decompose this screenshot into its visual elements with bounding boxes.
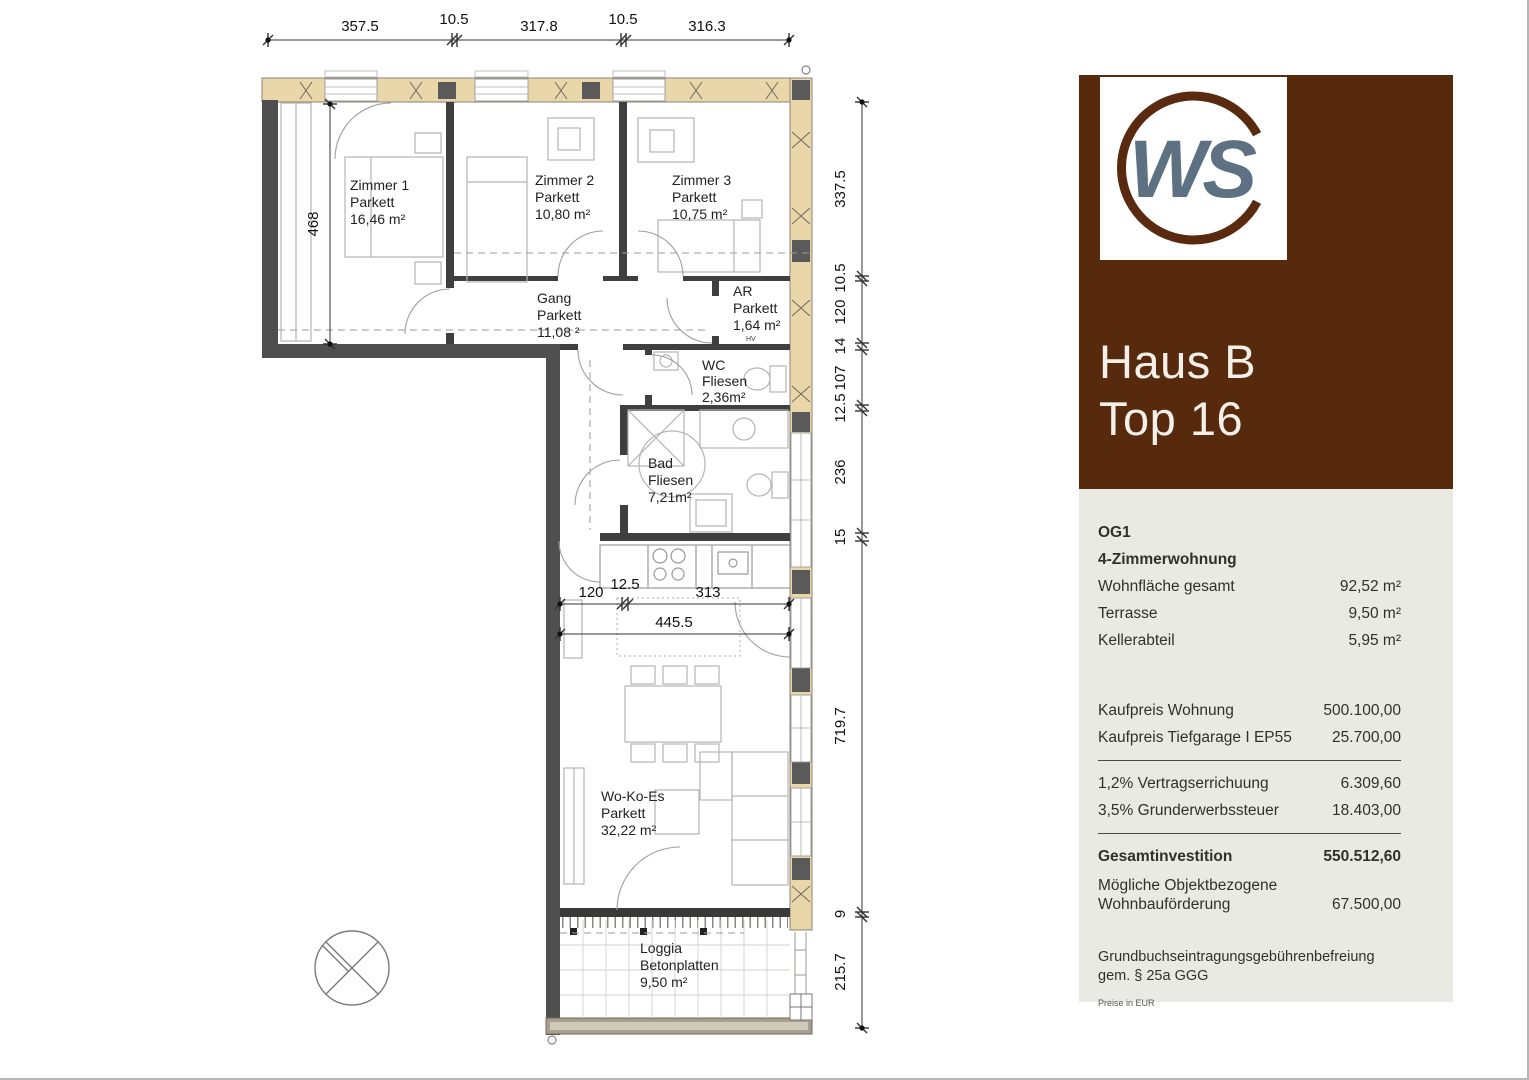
- subsidy-row: Mögliche Objektbezogene Wohnbauförderung…: [1098, 876, 1401, 914]
- hv-label: HV: [746, 336, 756, 343]
- svg-text:Gang: Gang: [537, 290, 571, 306]
- unit-title-line2: Top 16: [1099, 390, 1256, 447]
- area-row: Wohnfläche gesamt92,52 m²: [1098, 573, 1401, 600]
- unit-title: Haus B Top 16: [1099, 333, 1256, 447]
- svg-text:236: 236: [832, 459, 849, 484]
- svg-text:313: 313: [695, 584, 720, 601]
- svg-text:Parkett: Parkett: [733, 300, 777, 316]
- divider: [1098, 833, 1401, 834]
- svg-text:16,46 m²: 16,46 m²: [350, 211, 406, 227]
- fee-row: 1,2% Vertragserrichuung6.309,60: [1098, 770, 1401, 797]
- svg-text:9,50 m²: 9,50 m²: [640, 974, 688, 990]
- svg-text:AR: AR: [733, 283, 752, 299]
- svg-text:317.8: 317.8: [520, 18, 558, 35]
- room-ar: AR Parkett 1,64 m²: [733, 283, 781, 333]
- svg-text:107: 107: [832, 365, 849, 390]
- svg-text:Parkett: Parkett: [601, 805, 645, 821]
- room-zimmer2: Zimmer 2 Parkett 10,80 m²: [535, 172, 594, 222]
- svg-text:Fliesen: Fliesen: [648, 472, 693, 488]
- svg-text:215.7: 215.7: [832, 953, 849, 991]
- unit-info-panel: OG1 4-Zimmerwohnung Wohnfläche gesamt92,…: [1079, 489, 1453, 1002]
- svg-text:357.5: 357.5: [341, 18, 379, 35]
- svg-text:10.5: 10.5: [439, 11, 468, 28]
- svg-text:32,22 m²: 32,22 m²: [601, 822, 657, 838]
- room-wc: WC Fliesen 2,36m²: [702, 357, 747, 405]
- total-row: Gesamtinvestition550.512,60: [1098, 843, 1401, 870]
- apartment-type: 4-Zimmerwohnung: [1098, 546, 1237, 573]
- svg-text:7,21m²: 7,21m²: [648, 489, 692, 505]
- ws-logo-icon: WS: [1100, 77, 1287, 260]
- area-row: Terrasse9,50 m²: [1098, 600, 1401, 627]
- room-zimmer3: Zimmer 3 Parkett 10,75 m²: [672, 172, 731, 222]
- svg-text:11,08 ²: 11,08 ²: [537, 324, 580, 340]
- unit-title-line1: Haus B: [1099, 333, 1256, 390]
- datum-circle-bottom: [548, 1036, 556, 1044]
- svg-text:12.5: 12.5: [610, 576, 639, 593]
- dimension-left-inner: 468: [305, 99, 337, 349]
- svg-text:WC: WC: [702, 357, 725, 373]
- dimension-kitchen-inner: 120 12.5 313 445.5: [555, 576, 794, 641]
- svg-text:Parkett: Parkett: [537, 307, 581, 323]
- svg-text:337.5: 337.5: [832, 170, 849, 208]
- svg-text:9: 9: [832, 910, 849, 918]
- floor-label: OG1: [1098, 519, 1131, 546]
- svg-text:120: 120: [578, 584, 603, 601]
- svg-text:468: 468: [305, 211, 322, 236]
- room-bad: Bad Fliesen 7,21m²: [648, 455, 693, 505]
- price-row: Kaufpreis Tiefgarage I EP5525.700,00: [1098, 724, 1401, 751]
- svg-text:10.5: 10.5: [608, 11, 637, 28]
- floorplan-sheet: Zimmer 1 Parkett 16,46 m² Zimmer 2 Parke…: [0, 0, 1529, 1080]
- room-gang: Gang Parkett 11,08 ²: [537, 290, 581, 340]
- divider: [1098, 760, 1401, 761]
- company-logo: WS: [1100, 77, 1287, 260]
- brand-header: WS Haus B Top 16: [1079, 75, 1453, 489]
- svg-text:Wo-Ko-Es: Wo-Ko-Es: [601, 788, 665, 804]
- price-row: Kaufpreis Wohnung500.100,00: [1098, 697, 1401, 724]
- fee-row: 3,5% Grunderwerbssteuer18.403,00: [1098, 797, 1401, 824]
- room-zimmer1: Zimmer 1 Parkett 16,46 m²: [350, 177, 409, 227]
- svg-text:445.5: 445.5: [655, 614, 693, 631]
- svg-text:Betonplatten: Betonplatten: [640, 957, 719, 973]
- svg-text:2,36m²: 2,36m²: [702, 389, 746, 405]
- svg-text:Zimmer 1: Zimmer 1: [350, 177, 409, 193]
- svg-text:12.5: 12.5: [832, 393, 849, 422]
- svg-text:316.3: 316.3: [688, 18, 726, 35]
- svg-text:Parkett: Parkett: [535, 189, 579, 205]
- svg-text:10,80 m²: 10,80 m²: [535, 206, 591, 222]
- svg-text:WS: WS: [1129, 124, 1256, 215]
- currency-footnote: Preise in EUR: [1098, 998, 1401, 1008]
- svg-text:Zimmer 3: Zimmer 3: [672, 172, 731, 188]
- room-loggia: Loggia Betonplatten 9,50 m²: [640, 940, 719, 990]
- svg-text:Parkett: Parkett: [672, 189, 716, 205]
- svg-text:14: 14: [832, 338, 849, 355]
- svg-text:10.5: 10.5: [832, 263, 849, 292]
- svg-text:10,75 m²: 10,75 m²: [672, 206, 728, 222]
- compass-icon: [315, 931, 389, 1005]
- area-row: Kellerabteil5,95 m²: [1098, 627, 1401, 654]
- svg-text:120: 120: [832, 299, 849, 324]
- svg-text:15: 15: [832, 529, 849, 546]
- dimension-top-chain: 357.5 10.5 317.8 10.5 316.3: [263, 11, 794, 47]
- dimension-right-chain: 337.5 10.5 120 14 107 12.5 236 15 719.7 …: [832, 97, 869, 1033]
- svg-text:Loggia: Loggia: [640, 940, 682, 956]
- datum-circle-top: [802, 66, 810, 74]
- svg-text:Bad: Bad: [648, 455, 673, 471]
- svg-text:719.7: 719.7: [832, 707, 849, 745]
- svg-text:1,64 m²: 1,64 m²: [733, 317, 781, 333]
- svg-text:Fliesen: Fliesen: [702, 373, 747, 389]
- floor-plan: Zimmer 1 Parkett 16,46 m² Zimmer 2 Parke…: [0, 0, 1060, 1080]
- svg-text:Parkett: Parkett: [350, 194, 394, 210]
- svg-text:Zimmer 2: Zimmer 2: [535, 172, 594, 188]
- legal-note: Grundbuchseintragungsgebührenbefreiung g…: [1098, 948, 1401, 986]
